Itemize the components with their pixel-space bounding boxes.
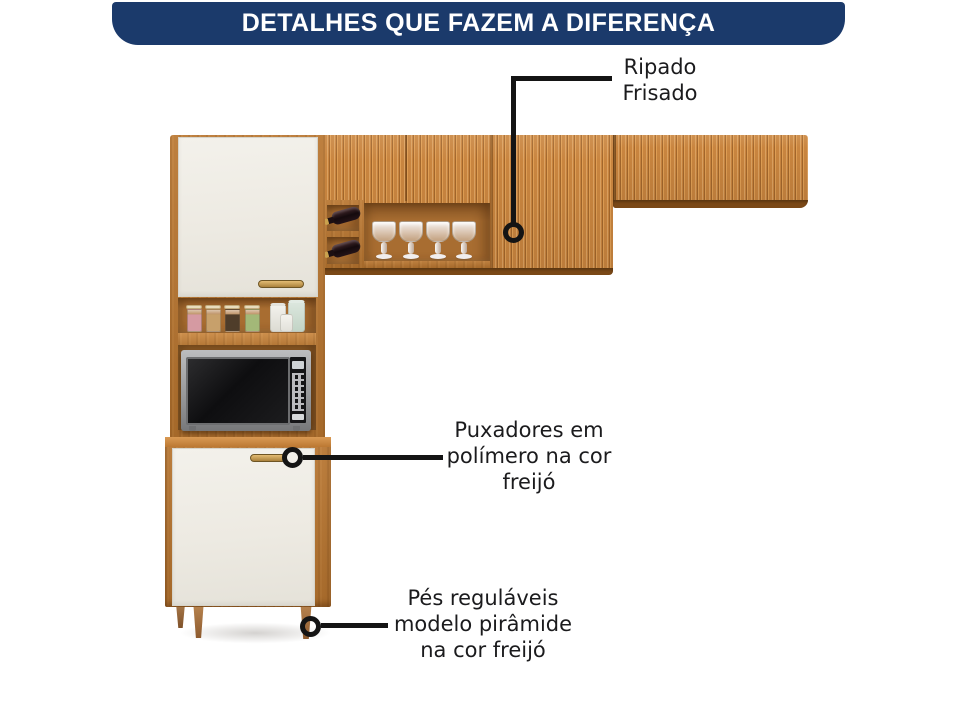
wine-glass [452, 221, 476, 264]
upper-cabinet-right [613, 135, 808, 200]
callout-marker-ripado-icon [503, 222, 524, 243]
callout-label-line: Frisado [598, 80, 722, 106]
callout-label-line: na cor freijó [390, 637, 576, 663]
lower-door-handle [250, 454, 286, 462]
glass-bowl [372, 221, 396, 242]
shelf-board [178, 333, 316, 345]
jar-contents [206, 309, 221, 332]
spice-jar [186, 305, 202, 332]
glass-base [456, 254, 472, 259]
callout-label-line: modelo pirâmide [390, 611, 576, 637]
glass-stem [408, 242, 414, 254]
jar-contents [225, 309, 240, 332]
wine-glass [426, 221, 450, 264]
spice-jar [205, 305, 221, 332]
microwave-open-button [292, 414, 304, 420]
microwave-display [292, 361, 304, 369]
microwave-door [186, 357, 290, 425]
spice-jar [224, 305, 240, 332]
jar-contents [187, 309, 202, 332]
upper-cabinet-door-seam [491, 135, 493, 268]
glass-bowl [399, 221, 423, 242]
upper-cabinet-junction-seam [613, 135, 616, 200]
product-infographic: DETALHES QUE FAZEM A DIFERENÇA [0, 0, 960, 720]
callout-label-puxadores: Puxadores em polímero na cor freijó [438, 417, 620, 495]
wine-glass [372, 221, 396, 264]
banner-title: DETALHES QUE FAZEM A DIFERENÇA [242, 9, 716, 38]
callout-marker-puxadores-icon [282, 447, 303, 468]
microwave-foot [293, 426, 300, 431]
microwave-keypad [292, 373, 304, 411]
glass-stem [461, 242, 467, 254]
upper-cabinet-door-seam [405, 135, 407, 201]
callout-label-line: Ripado [598, 54, 722, 80]
upper-door-handle [258, 280, 304, 288]
wine-glass [399, 221, 423, 264]
glass-stem [435, 242, 441, 254]
callout-line-ripado-horizontal [511, 76, 612, 81]
jar-contents [245, 309, 260, 332]
callout-label-line: freijó [438, 469, 620, 495]
callout-line-puxadores [303, 455, 443, 460]
callout-marker-pes-icon [300, 616, 321, 637]
spice-jar [244, 305, 260, 332]
upper-cabinet-right-bottom-edge [613, 200, 808, 208]
upper-cabinet-bottom-edge [322, 268, 613, 275]
base-cabinet-top-edge [165, 437, 331, 447]
microwave-foot [189, 426, 196, 431]
callout-label-line: Pés reguláveis [390, 585, 576, 611]
callout-label-pes: Pés reguláveis modelo pirâmide na cor fr… [390, 585, 576, 663]
title-banner: DETALHES QUE FAZEM A DIFERENÇA [112, 2, 845, 45]
callout-label-line: Puxadores em [438, 417, 620, 443]
microwave [181, 350, 311, 431]
glass-bowl [426, 221, 450, 242]
glass-base [430, 254, 446, 259]
glass-base [403, 254, 419, 259]
callout-label-ripado: Ripado Frisado [598, 54, 722, 106]
glass-stem [381, 242, 387, 254]
glass-base [376, 254, 392, 259]
callout-line-pes [321, 623, 388, 628]
tall-cabinet-upper-door [178, 137, 318, 297]
canister [280, 314, 293, 332]
callout-label-line: polímero na cor [438, 443, 620, 469]
glass-bowl [452, 221, 476, 242]
callout-line-ripado-vertical [511, 76, 516, 223]
base-cabinet-door [172, 448, 315, 606]
